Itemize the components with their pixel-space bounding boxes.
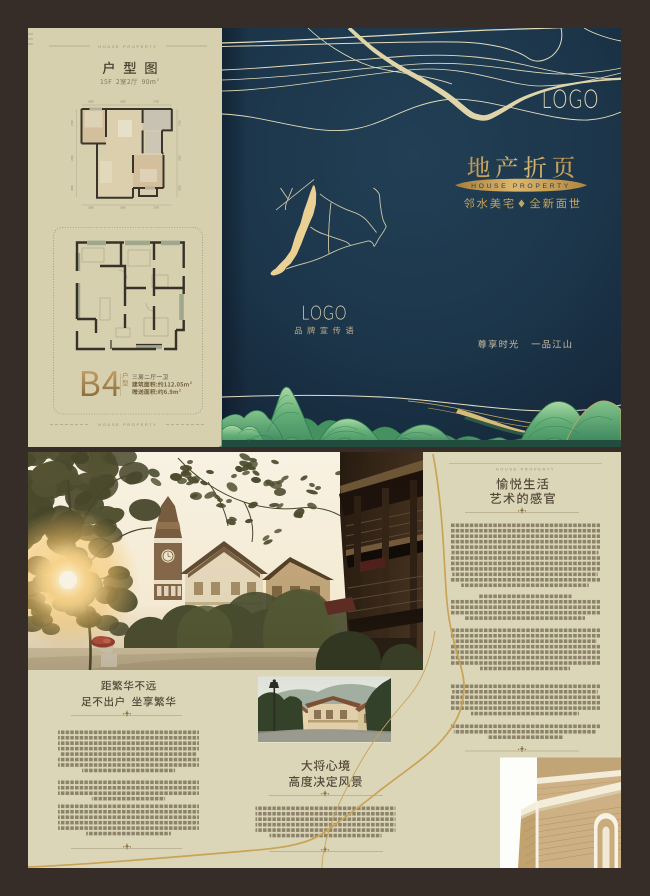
svg-text:HOUSE PROPERTY: HOUSE PROPERTY (471, 183, 571, 190)
svg-text:2600: 2600 (120, 101, 126, 104)
svg-text:2800: 2800 (88, 101, 94, 104)
svg-text:2: 2 (190, 381, 192, 385)
svg-text:2600: 2600 (120, 207, 126, 210)
svg-text:2700: 2700 (153, 101, 159, 104)
svg-text:2600: 2600 (179, 185, 182, 191)
svg-text:HOUSE PROPERTY: HOUSE PROPERTY (98, 423, 157, 427)
svg-text:2700: 2700 (179, 120, 182, 126)
svg-text:2: 2 (179, 389, 181, 393)
svg-text:2700: 2700 (71, 120, 74, 126)
svg-text:2600: 2600 (71, 185, 74, 191)
svg-text:2300: 2300 (71, 155, 74, 161)
svg-text:2800: 2800 (88, 207, 94, 210)
svg-text:HOUSE PROPERTY: HOUSE PROPERTY (496, 468, 555, 472)
svg-text:2700: 2700 (153, 207, 159, 210)
svg-text:HOUSE PROPERTY: HOUSE PROPERTY (98, 45, 157, 49)
svg-text:2: 2 (157, 78, 159, 82)
svg-text:2300: 2300 (179, 155, 182, 161)
